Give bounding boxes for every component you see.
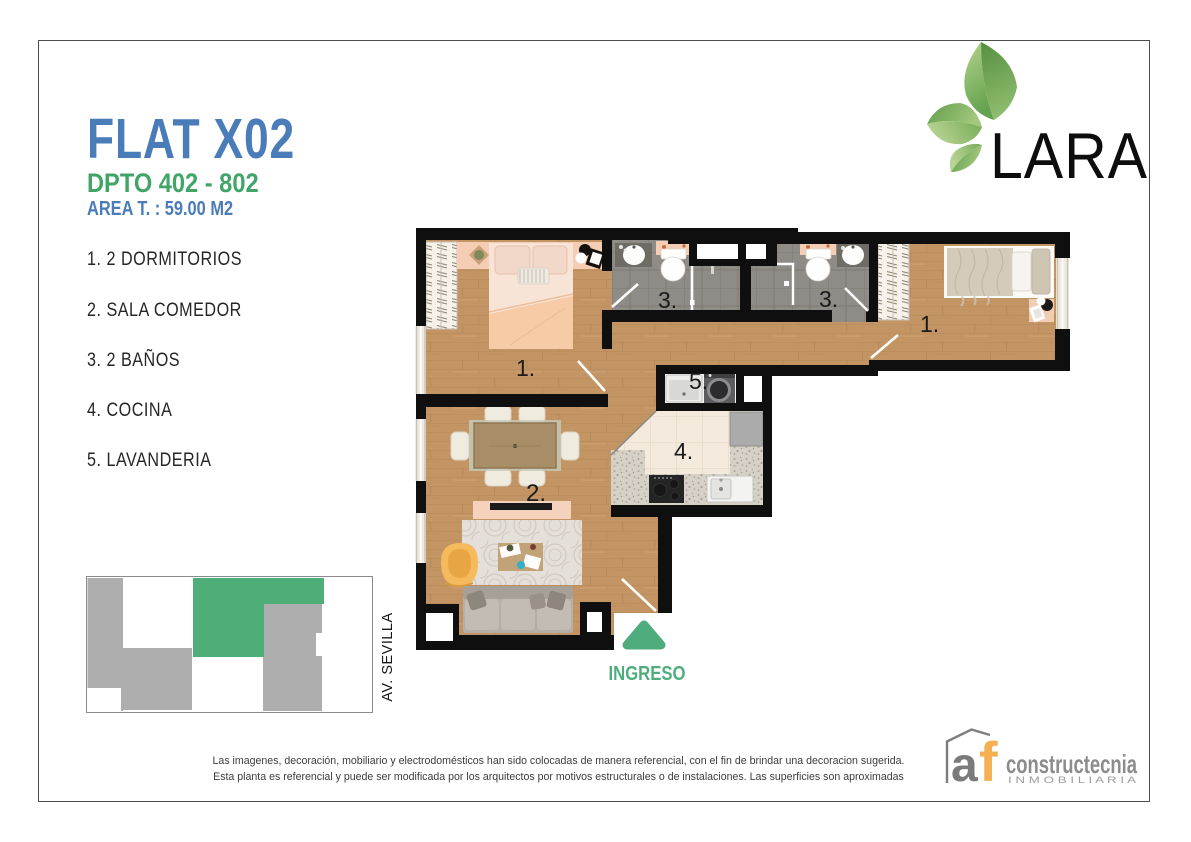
svg-text:3.: 3. <box>658 287 677 313</box>
svg-text:4.: 4. <box>674 438 693 464</box>
svg-text:a: a <box>951 739 978 792</box>
svg-text:I N M O B I L I A R I A: I N M O B I L I A R I A <box>1008 775 1136 785</box>
svg-text:1.: 1. <box>920 311 939 337</box>
svg-text:1.: 1. <box>516 355 535 381</box>
svg-text:LARA: LARA <box>990 119 1148 192</box>
svg-text:2.: 2. <box>526 480 546 507</box>
svg-text:INGRESO: INGRESO <box>609 663 686 685</box>
svg-text:3.: 3. <box>819 286 838 312</box>
svg-text:5.: 5. <box>689 368 708 394</box>
svg-text:f: f <box>979 730 998 793</box>
